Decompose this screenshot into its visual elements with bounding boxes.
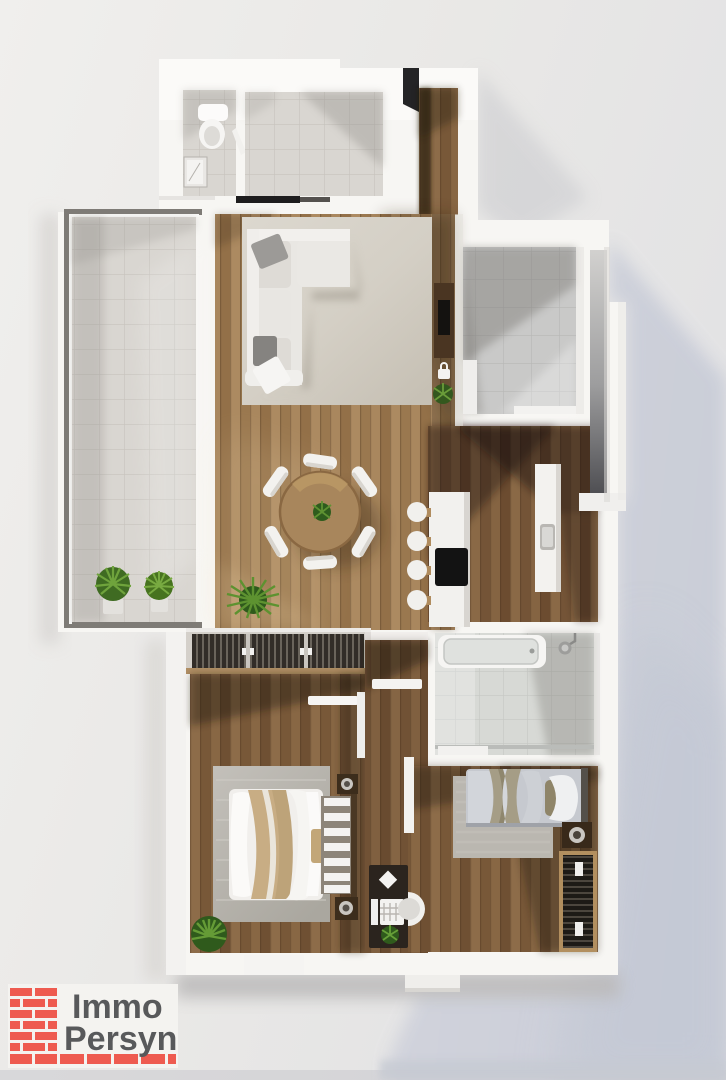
svg-text:Persyn: Persyn	[64, 1020, 177, 1058]
